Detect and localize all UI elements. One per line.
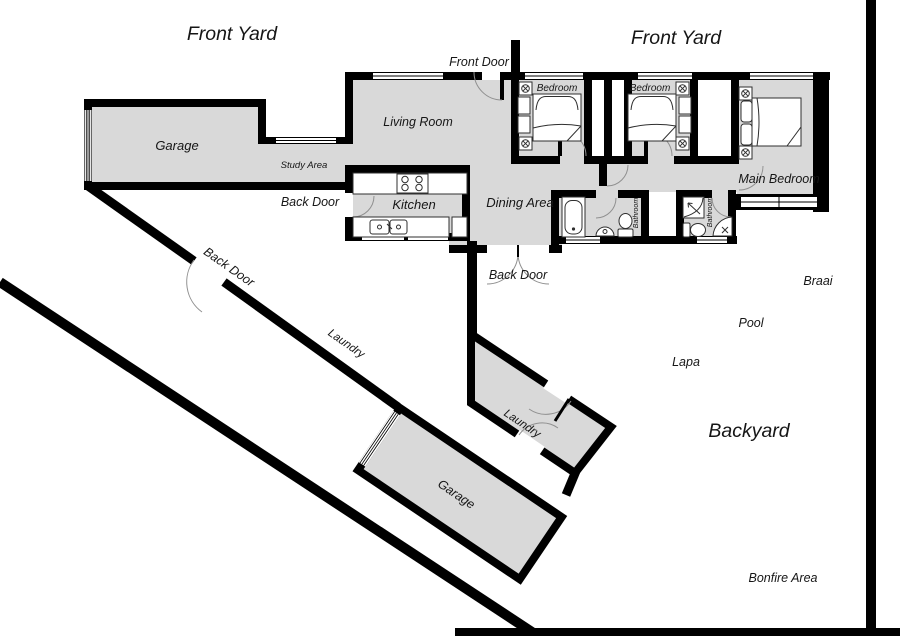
wall-wing-bottom-b xyxy=(584,156,648,164)
toilet2-icon xyxy=(683,223,706,237)
kitchen-counter-corner xyxy=(452,217,467,237)
wall-living-left xyxy=(345,72,353,144)
floor-plan-canvas: Garage Front Yard Front Yard Front Door … xyxy=(0,0,900,636)
label-main-bedroom: Main Bedroom xyxy=(738,172,819,186)
nightstand-icon xyxy=(519,137,532,150)
wall-mainbed-left xyxy=(731,80,739,164)
wardrobe-icon xyxy=(518,116,530,133)
front-door-leaf xyxy=(500,72,504,100)
floor-plan: Garage Front Yard Front Yard Front Door … xyxy=(0,0,900,636)
wall-bathcloset-left xyxy=(641,190,649,244)
label-front-yard-right: Front Yard xyxy=(631,27,722,49)
closet-1 xyxy=(592,80,604,154)
label-kitchen: Kitchen xyxy=(392,197,435,212)
label-pool: Pool xyxy=(738,316,764,330)
label-backyard: Backyard xyxy=(708,420,790,442)
nightstand-icon xyxy=(676,82,689,95)
nightstand-icon xyxy=(519,82,532,95)
diagonal-wall-upper-b xyxy=(224,282,398,407)
main-bed-icon xyxy=(741,98,801,146)
window-study xyxy=(276,138,336,143)
label-bathroom-2: Bathroom xyxy=(707,197,714,228)
kitchen-back-door-gap xyxy=(345,193,353,217)
sink-icon xyxy=(370,220,407,234)
label-living-room: Living Room xyxy=(383,115,452,129)
wardrobe-icon xyxy=(679,116,691,133)
wall-entry-protrusion xyxy=(511,40,520,76)
wardrobe-icon xyxy=(679,97,691,114)
label-garage-top: Garage xyxy=(155,138,198,153)
wall-garage-top xyxy=(84,99,266,107)
slider-main-bedroom xyxy=(741,197,817,207)
bed-icon xyxy=(533,94,581,141)
bed-icon xyxy=(628,94,676,141)
wall-hall-stub xyxy=(599,160,607,186)
nightstand-icon xyxy=(676,137,689,150)
label-front-door: Front Door xyxy=(449,55,510,69)
toilet-icon xyxy=(618,214,633,238)
window-bedroom2 xyxy=(638,73,692,79)
bathtub-icon xyxy=(562,197,585,237)
wall-kitchen-top xyxy=(345,165,470,173)
garage-door-top xyxy=(85,110,92,181)
wall-garage-bottom xyxy=(84,182,352,190)
label-study-area: Study Area xyxy=(281,160,328,171)
label-back-door-dining: Back Door xyxy=(489,268,548,282)
wall-bath1-top-b xyxy=(618,190,641,198)
wall-wing-bottom-c xyxy=(674,156,739,164)
label-braai: Braai xyxy=(803,274,833,288)
label-back-door-kitchen: Back Door xyxy=(281,195,340,209)
window-bath2 xyxy=(697,237,727,243)
wall-wing-bottom-a xyxy=(511,156,560,164)
closet-3 xyxy=(698,80,731,156)
bath-closet xyxy=(649,198,676,236)
wall-closet-mid xyxy=(604,80,612,156)
window-main-bedroom xyxy=(750,73,813,79)
label-front-yard-left: Front Yard xyxy=(187,23,278,45)
window-bedroom1 xyxy=(525,73,583,79)
front-door-gap xyxy=(482,72,502,80)
wall-wing-right xyxy=(813,72,829,212)
diagonal-wall-upper-a xyxy=(88,186,194,261)
laundry-garage-stub-wall xyxy=(566,471,576,495)
wall-drop xyxy=(467,241,477,337)
wall-garage-right xyxy=(258,99,266,144)
shower-icon xyxy=(683,197,704,218)
nightstand-icon xyxy=(739,87,752,100)
label-dining-area: Dining Area xyxy=(486,195,553,210)
stove-icon xyxy=(397,174,428,193)
label-bedroom-2: Bedroom xyxy=(630,83,671,94)
label-bathroom-1: Bathroom xyxy=(633,198,640,229)
side-back-door-arc xyxy=(187,260,202,312)
label-lapa: Lapa xyxy=(672,355,700,369)
window-living xyxy=(373,73,443,79)
closet-2 xyxy=(612,80,624,154)
nightstand-icon xyxy=(739,146,752,159)
right-boundary-wall xyxy=(866,0,876,636)
bottom-boundary-wall xyxy=(455,628,900,636)
wardrobe-icon xyxy=(518,97,530,114)
label-bedroom-1: Bedroom xyxy=(537,83,578,94)
window-bath1 xyxy=(566,237,600,243)
label-bonfire-area: Bonfire Area xyxy=(748,571,817,585)
